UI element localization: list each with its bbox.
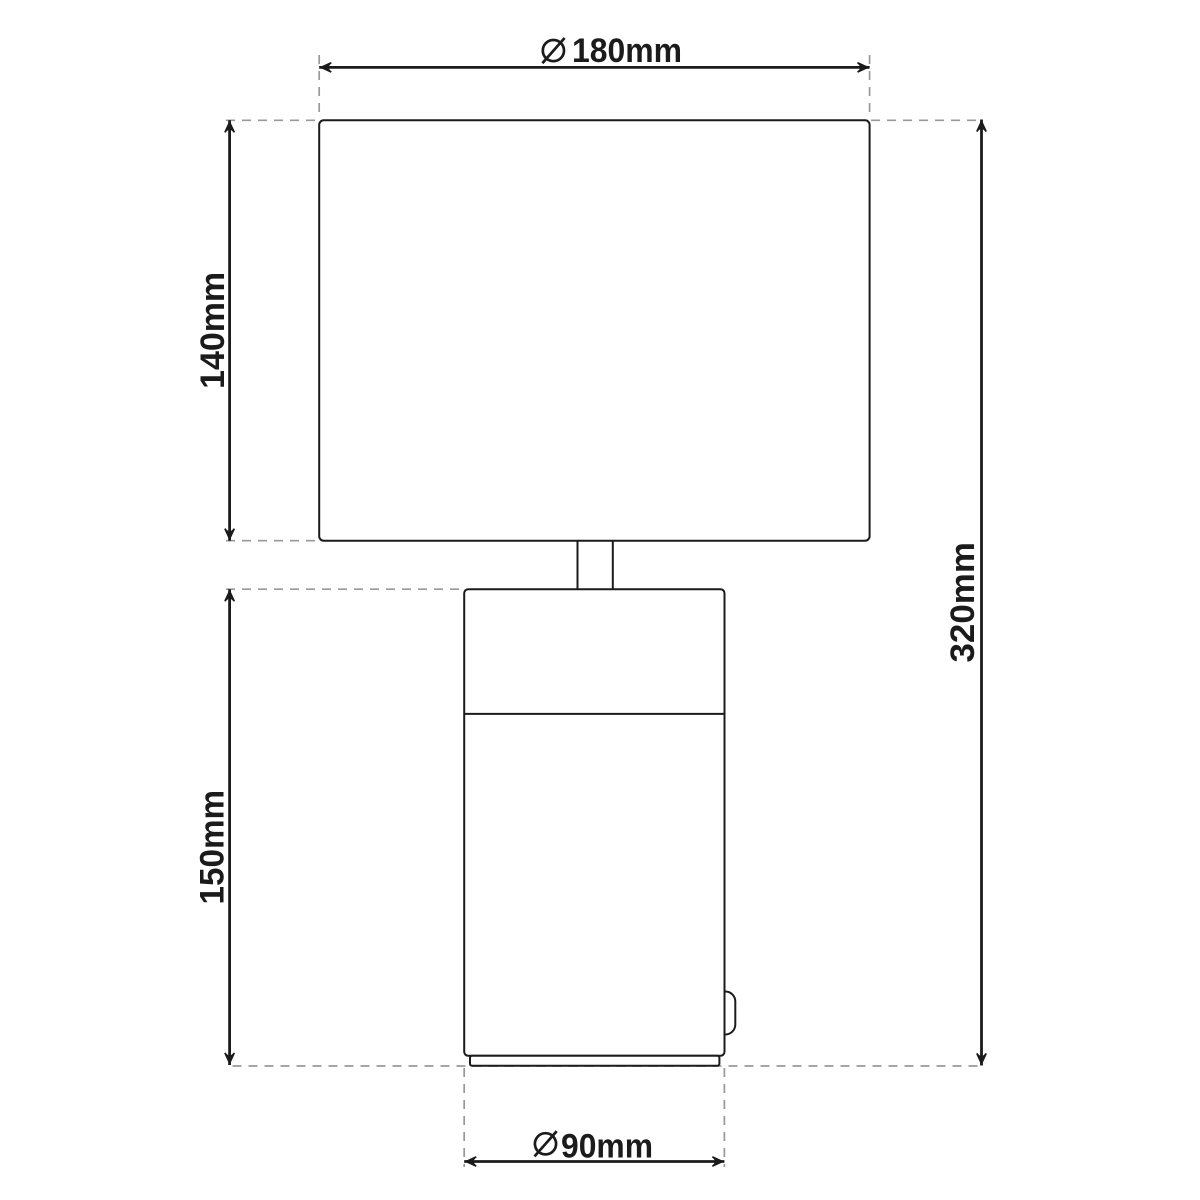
- svg-text:180mm: 180mm: [572, 32, 682, 70]
- svg-text:150mm: 150mm: [194, 790, 232, 905]
- svg-text:320mm: 320mm: [944, 542, 982, 663]
- svg-text:140mm: 140mm: [194, 272, 232, 389]
- svg-text:90mm: 90mm: [561, 1127, 653, 1165]
